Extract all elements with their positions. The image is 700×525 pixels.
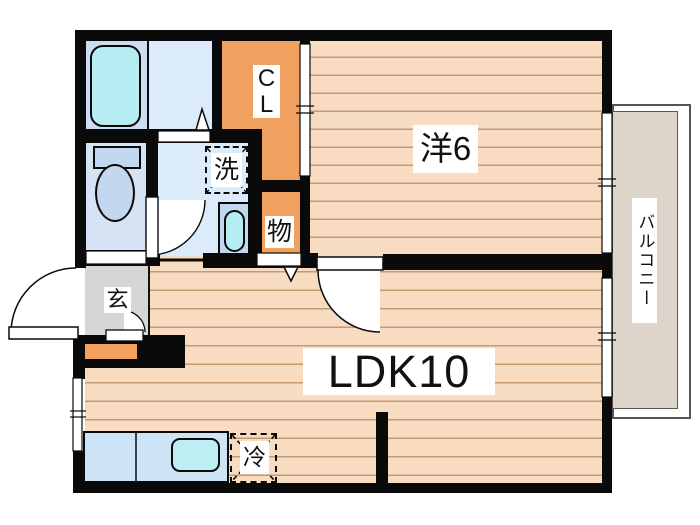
- wall-bath-closet: [212, 40, 222, 130]
- storage-label: 物: [265, 216, 294, 248]
- wall-bottom: [75, 483, 612, 493]
- closet-label: C L: [253, 65, 280, 118]
- toilet-bowl: [95, 164, 135, 222]
- closet-floor-lower: [258, 128, 300, 182]
- wall-top: [75, 30, 612, 41]
- ldk-label: LDK10: [303, 348, 495, 395]
- wall-ldk-partition: [376, 412, 388, 485]
- wall-left-upper: [75, 30, 86, 268]
- balcony-label: バルコニー: [632, 198, 657, 323]
- bathtub: [90, 45, 141, 127]
- bathroom-washarea-floor: [147, 40, 212, 130]
- washer-label: 洗: [211, 153, 242, 187]
- shoe-cabinet-front: [85, 344, 137, 359]
- vanity-basin: [224, 210, 245, 252]
- fridge-label: 冷: [240, 441, 269, 474]
- wall-western-ldk: [383, 254, 612, 270]
- floor-plan: 洋6 LDK10 C L 洗 物 玄 冷 バルコニー: [0, 0, 700, 525]
- wall-closet-storage: [258, 180, 300, 192]
- western-room-label: 洋6: [413, 125, 478, 173]
- kitchen-sink: [171, 438, 220, 472]
- wall-toilet-washroom: [146, 140, 158, 202]
- entrance-door: [9, 268, 78, 339]
- wall-closet-western: [300, 30, 310, 256]
- wall-toilet-bottom: [75, 250, 160, 266]
- entrance-label: 玄: [104, 287, 131, 313]
- wall-washroom-closet: [248, 129, 262, 258]
- wall-bath-bottom: [75, 129, 258, 143]
